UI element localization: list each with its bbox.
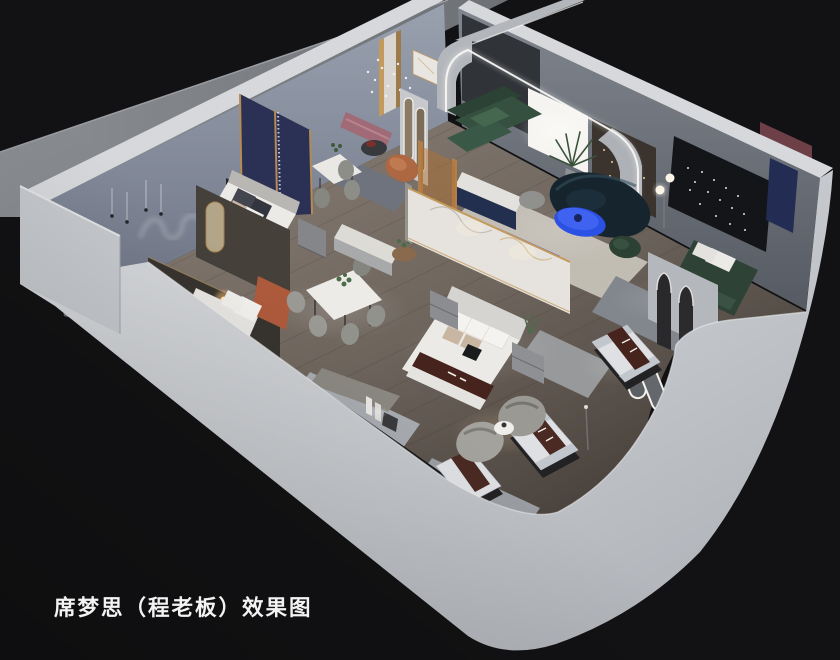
gold-arch-mirror — [206, 202, 224, 252]
caption: 席梦思（程老板）效果图 — [54, 591, 313, 622]
dining-chair — [338, 160, 354, 180]
oval-mirror — [404, 98, 413, 160]
dining-chair — [344, 180, 360, 200]
table-sculpture — [574, 214, 582, 222]
round-side-table — [392, 247, 416, 262]
arch-opening — [657, 273, 671, 350]
interior-render-scene — [0, 0, 840, 660]
caption-text: 席梦思（程老板）效果图 — [54, 596, 313, 620]
render-canvas: 席梦思（程老板）效果图 — [0, 0, 840, 660]
dining-chair — [314, 188, 330, 208]
knit-pouf — [519, 191, 545, 209]
navy-panel — [766, 158, 798, 233]
